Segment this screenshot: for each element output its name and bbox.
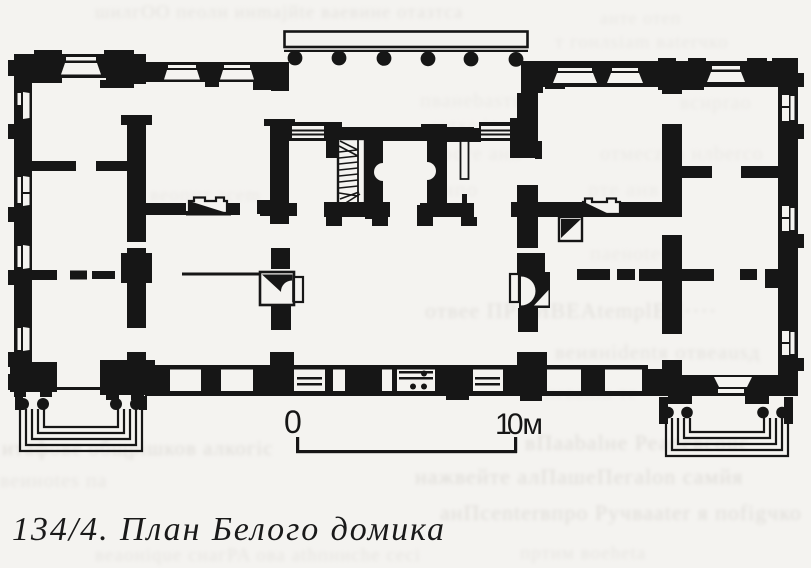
svg-text:10 м: 10 м (495, 408, 543, 441)
svg-text:0: 0 (284, 404, 302, 440)
svg-text:134/4. План Белого домика: 134/4. План Белого домика (12, 511, 444, 548)
